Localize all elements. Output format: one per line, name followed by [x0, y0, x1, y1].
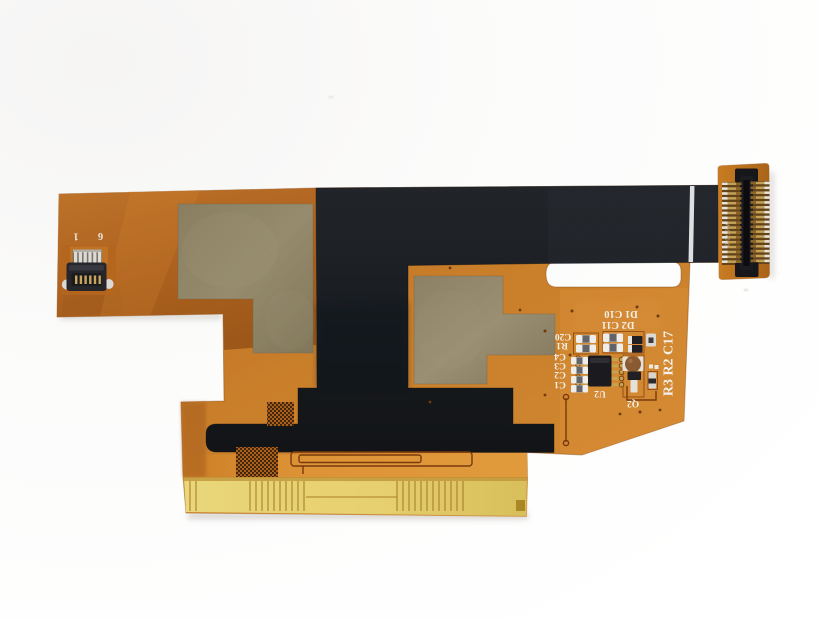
svg-text:D2 C11: D2 C11 — [602, 319, 635, 330]
svg-text:R1: R1 — [556, 340, 568, 350]
svg-text:D1 C10: D1 C10 — [604, 308, 638, 319]
svg-text:C1: C1 — [554, 379, 566, 389]
svg-text:6: 6 — [98, 230, 103, 241]
svg-text:C20: C20 — [555, 331, 572, 341]
svg-text:U2: U2 — [594, 388, 606, 398]
svg-text:C4: C4 — [554, 351, 566, 361]
svg-text:Q2: Q2 — [627, 398, 639, 408]
svg-text:C3: C3 — [554, 360, 566, 370]
svg-text:R3 R2 C17: R3 R2 C17 — [662, 331, 677, 396]
svg-text:1: 1 — [73, 231, 78, 242]
svg-text:C2: C2 — [554, 369, 566, 379]
